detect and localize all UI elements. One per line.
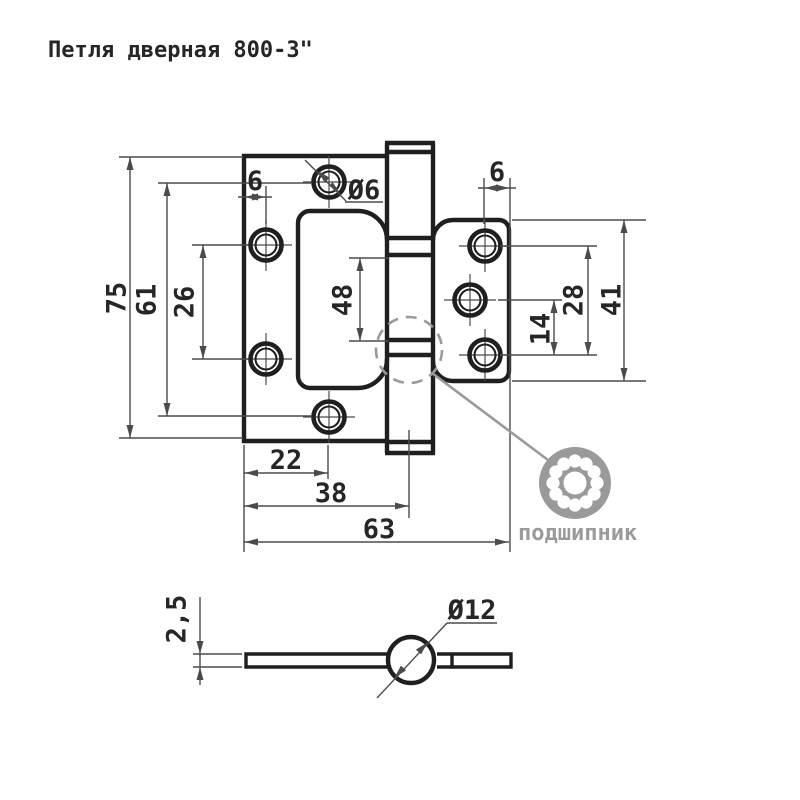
arrowhead bbox=[395, 503, 408, 510]
hinge-technical-drawing: Петля дверная 800-3" bbox=[0, 0, 800, 800]
arrowhead bbox=[621, 368, 628, 381]
drawing-page: Петля дверная 800-3" bbox=[0, 0, 800, 800]
bearing-ball bbox=[549, 487, 562, 500]
arrowhead bbox=[395, 666, 407, 678]
arrowhead bbox=[416, 643, 428, 655]
arrowhead bbox=[245, 503, 258, 510]
arrowhead bbox=[200, 245, 207, 258]
bearing-ball bbox=[588, 465, 601, 478]
arrowhead bbox=[245, 539, 258, 546]
arrowhead bbox=[495, 539, 508, 546]
dim-label: 48 bbox=[328, 284, 359, 317]
arrowhead bbox=[127, 157, 134, 170]
arrowhead bbox=[164, 403, 171, 416]
arrowhead bbox=[585, 342, 592, 355]
dim-label: 41 bbox=[597, 284, 628, 317]
arrowhead bbox=[127, 425, 134, 438]
arrowhead bbox=[200, 346, 207, 359]
arrowhead bbox=[621, 220, 628, 233]
dim-leaf-thickness: 2,5 bbox=[162, 595, 243, 685]
dim-label: 26 bbox=[170, 286, 201, 319]
bearing-bore bbox=[564, 472, 587, 495]
arrowhead bbox=[164, 183, 171, 196]
bearing-illustration bbox=[539, 447, 611, 519]
dim-label: 6 bbox=[247, 166, 263, 197]
bearing-detail: подшипник bbox=[376, 317, 637, 546]
arrowhead bbox=[357, 328, 364, 341]
right-leaf-section bbox=[437, 654, 511, 667]
screw-hole bbox=[444, 274, 496, 326]
bearing-label: подшипник bbox=[518, 521, 637, 546]
drawing-title: Петля дверная 800-3" bbox=[48, 38, 313, 63]
dim-label: Ø6 bbox=[347, 175, 381, 206]
dim-label: 6 bbox=[489, 157, 505, 188]
arrowhead bbox=[197, 641, 204, 654]
dim-label: 38 bbox=[315, 478, 348, 509]
arrowhead bbox=[245, 470, 258, 477]
arrowhead bbox=[551, 300, 558, 313]
leader-line bbox=[432, 373, 548, 460]
dim-overall-width: 63 bbox=[244, 514, 509, 546]
bearing-ball bbox=[590, 476, 603, 489]
arrowhead bbox=[585, 246, 592, 259]
dim-label: 61 bbox=[132, 284, 163, 317]
bearing-ball bbox=[557, 457, 570, 470]
screw-hole bbox=[303, 391, 355, 443]
dim-knuckle-length: 48 bbox=[328, 258, 390, 341]
dim-label: 22 bbox=[270, 445, 303, 476]
left-leaf-section bbox=[246, 654, 388, 667]
bearing-ball bbox=[546, 476, 559, 489]
arrowhead bbox=[314, 470, 327, 477]
dim-label: 2,5 bbox=[162, 595, 193, 644]
dim-label: Ø12 bbox=[447, 595, 497, 626]
dim-outer-hole-span: 61 bbox=[132, 183, 313, 416]
dim-label: 75 bbox=[102, 282, 133, 315]
dim-label: 63 bbox=[363, 514, 396, 545]
dim-label: 14 bbox=[526, 313, 557, 346]
arrowhead bbox=[357, 258, 364, 271]
dim-left-hole-span: 26 bbox=[170, 245, 249, 359]
section-view: 2,5 Ø12 bbox=[162, 595, 512, 698]
hinge-barrel bbox=[385, 143, 435, 453]
front-view: 75 61 26 6 bbox=[102, 143, 647, 552]
dim-label: 28 bbox=[559, 284, 590, 317]
arrowhead bbox=[197, 667, 204, 680]
